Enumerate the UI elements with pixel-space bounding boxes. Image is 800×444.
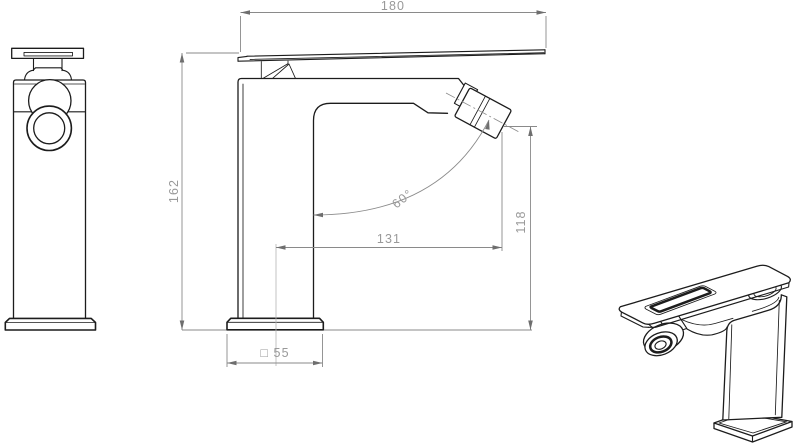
cartridge-dome-front bbox=[25, 68, 72, 80]
dim-overall-width: 180 bbox=[241, 0, 547, 52]
dim-overall-height: 162 bbox=[167, 53, 239, 330]
dim-label-base-55: □ 55 bbox=[260, 346, 289, 360]
spout-underside-profile bbox=[314, 103, 448, 318]
handle-stem-side bbox=[261, 61, 288, 78]
dim-label-162: 162 bbox=[167, 179, 181, 203]
handle-stem-front bbox=[34, 59, 63, 71]
body-outline-side bbox=[238, 79, 468, 319]
dim-label-118: 118 bbox=[514, 210, 528, 233]
base-front bbox=[5, 318, 95, 330]
dim-label-60deg: 60° bbox=[389, 186, 415, 211]
dim-base-square: □ 55 bbox=[227, 334, 323, 367]
faucet-drawing: 180 162 131 118 bbox=[0, 0, 800, 444]
dim-label-180: 180 bbox=[381, 0, 405, 13]
base-side bbox=[227, 318, 323, 330]
dim-label-131: 131 bbox=[377, 232, 401, 246]
front-view bbox=[5, 48, 95, 330]
technical-drawing-canvas: 180 162 131 118 bbox=[0, 0, 800, 444]
dim-outlet-height: 118 bbox=[504, 127, 537, 331]
dim-outlet-angle: 60° bbox=[314, 120, 492, 218]
handle-bottom-edge bbox=[238, 54, 545, 62]
column-3d bbox=[723, 295, 787, 420]
handle-inner-line bbox=[250, 53, 544, 60]
handle-slot-front bbox=[24, 52, 73, 56]
perspective-view bbox=[619, 265, 792, 442]
side-view bbox=[182, 50, 545, 330]
dim-spout-reach: 131 bbox=[276, 132, 502, 251]
